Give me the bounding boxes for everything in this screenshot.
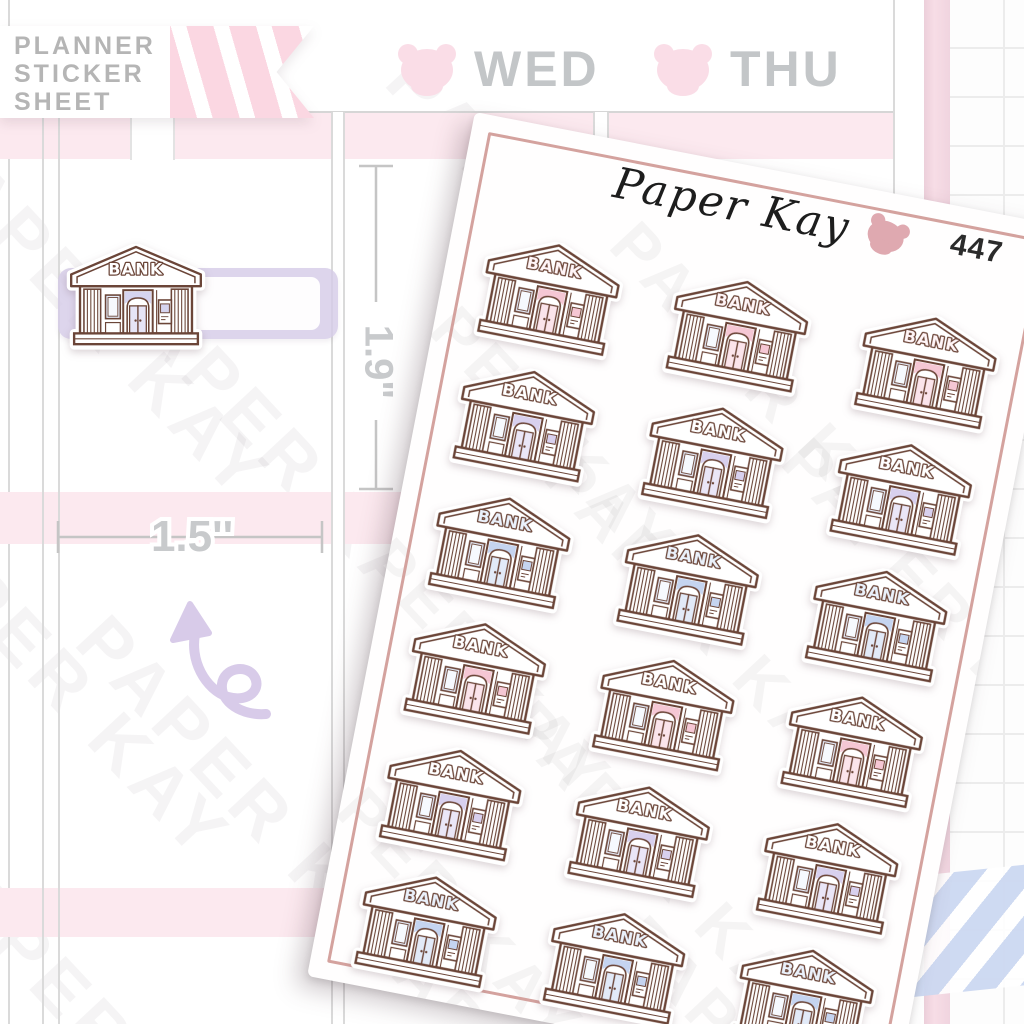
bear-icon (650, 41, 716, 97)
bank-sticker (366, 734, 535, 873)
bank-sticker-placed (62, 244, 210, 354)
bear-icon (857, 208, 916, 264)
banner-line: PLANNER (14, 32, 170, 60)
bank-sticker (653, 265, 822, 404)
product-mockup: BANK (0, 0, 1024, 1024)
dimension-height-line (359, 166, 393, 489)
banner-line: SHEET (14, 88, 170, 116)
day-header-thu: THU (650, 40, 842, 98)
sticker-sheet: PAPER KAY PAPER KAY PAPER KAY PAPER KAY … (307, 112, 1024, 1024)
bank-sticker (440, 355, 609, 494)
day-header-wed: WED (394, 40, 600, 98)
banner: PLANNER STICKER SHEET (0, 26, 314, 118)
bank-sticker (465, 229, 634, 368)
bank-sticker (792, 554, 961, 693)
bank-sticker (817, 428, 986, 567)
banner-text: PLANNER STICKER SHEET (0, 26, 170, 118)
bank-sticker (391, 607, 560, 746)
height-dimension-label: 1.9" (356, 325, 400, 400)
banner-line: STICKER (14, 60, 170, 88)
bank-sticker (719, 933, 888, 1024)
bank-sticker (768, 681, 937, 820)
bank-sticker (579, 644, 748, 783)
day-label: THU (730, 40, 842, 98)
bank-sticker (629, 391, 798, 530)
bank-sticker (604, 518, 773, 657)
bank-sticker (342, 860, 511, 999)
arrow-icon (173, 604, 266, 714)
bank-sticker (530, 897, 699, 1024)
bear-icon (394, 41, 460, 97)
banner-ribbon (170, 26, 314, 118)
bank-sticker (415, 481, 584, 620)
bank-sticker (842, 302, 1011, 441)
sticker-grid (320, 216, 1024, 1024)
day-label: WED (474, 40, 600, 98)
bank-sticker (743, 807, 912, 946)
bank-sticker (555, 770, 724, 909)
